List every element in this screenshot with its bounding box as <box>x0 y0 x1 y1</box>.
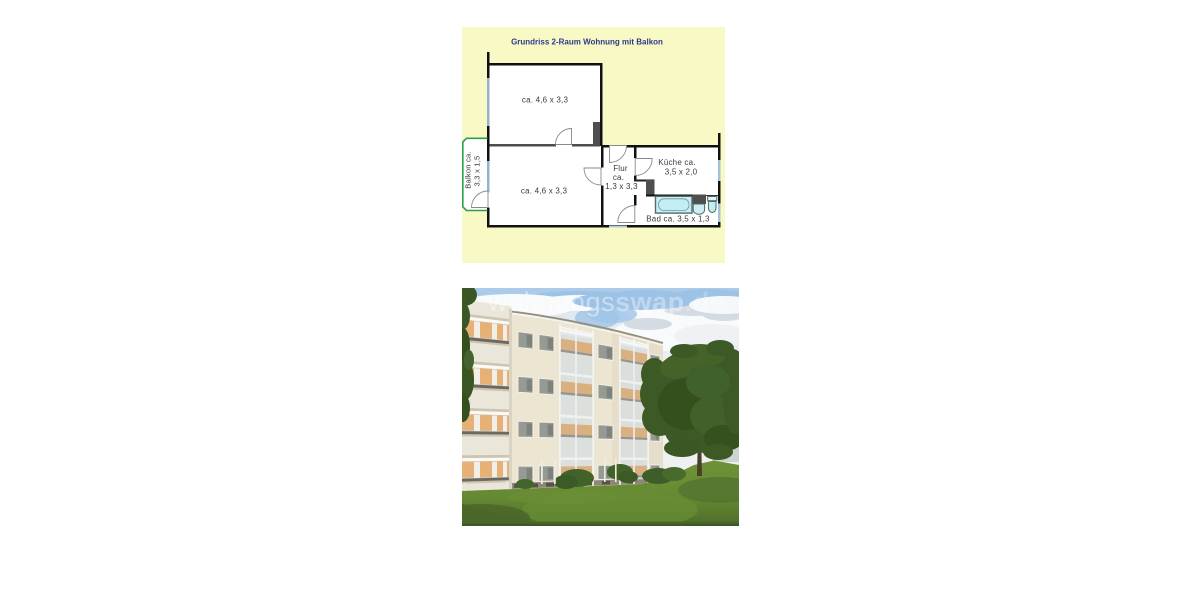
svg-text:3,3 x 1,5: 3,3 x 1,5 <box>473 156 482 187</box>
svg-text:Küche ca.: Küche ca. <box>658 158 695 167</box>
svg-text:ca.: ca. <box>613 173 624 182</box>
svg-text:ca. 4,6 x 3,3: ca. 4,6 x 3,3 <box>522 96 569 105</box>
svg-text:ca. 4,6 x 3,3: ca. 4,6 x 3,3 <box>521 187 568 196</box>
svg-text:1,3 x 3,3: 1,3 x 3,3 <box>605 182 638 191</box>
svg-text:3,5 x 2,0: 3,5 x 2,0 <box>665 168 698 177</box>
svg-text:wohnungsswap.de: wohnungsswap.de <box>487 288 725 317</box>
svg-text:Flur: Flur <box>613 164 628 173</box>
svg-text:Balkon ca.: Balkon ca. <box>464 151 473 188</box>
svg-text:Bad ca. 3,5 x 1,3: Bad ca. 3,5 x 1,3 <box>646 215 710 224</box>
svg-text:Grundriss 2-Raum Wohnung mit B: Grundriss 2-Raum Wohnung mit Balkon <box>511 38 663 47</box>
